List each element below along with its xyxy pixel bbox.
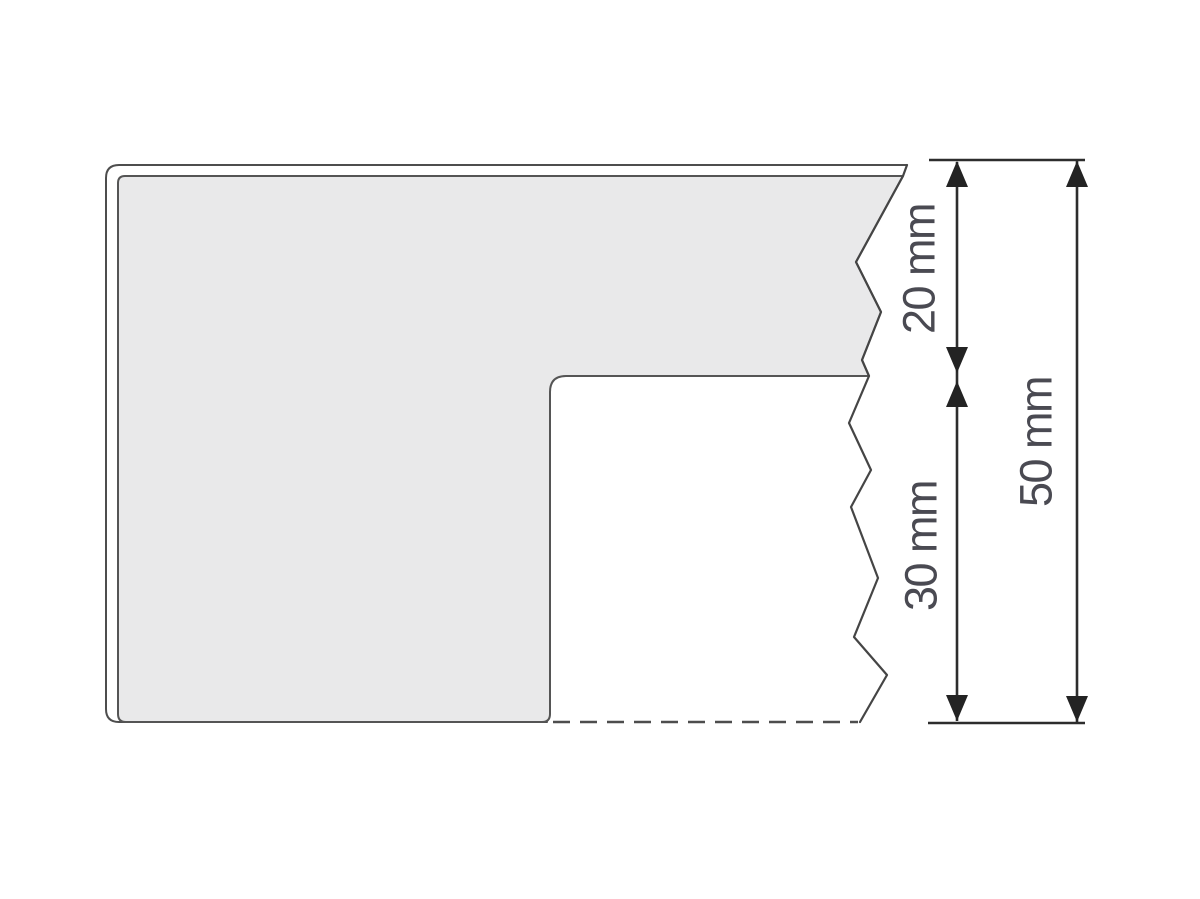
diagram-stage: 20 mm 30 mm 50 mm — [0, 0, 1200, 899]
panel-body — [118, 176, 903, 722]
dimension-label-20mm: 20 mm — [894, 204, 945, 334]
arrowhead-30mm-top — [946, 381, 968, 407]
arrowhead-50mm-bottom — [1066, 696, 1088, 722]
arrowhead-50mm-top — [1066, 161, 1088, 187]
dimension-label-50mm: 50 mm — [1011, 377, 1062, 507]
arrowhead-20mm-top — [946, 161, 968, 187]
dimension-label-30mm: 30 mm — [896, 481, 947, 611]
arrowhead-20mm-bottom — [946, 347, 968, 373]
arrowhead-30mm-bottom — [946, 695, 968, 721]
panel-dimension-diagram: 20 mm 30 mm 50 mm — [0, 0, 1200, 899]
